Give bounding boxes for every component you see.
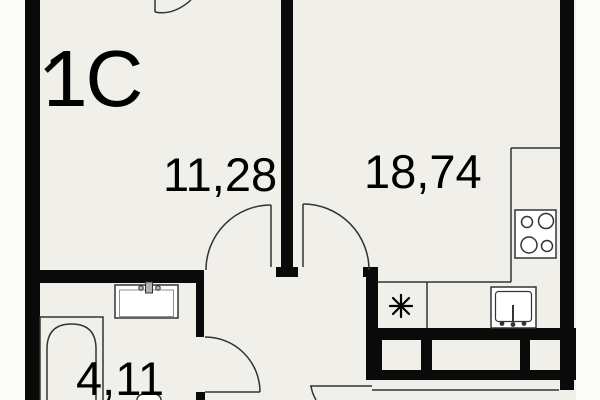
window-opening-3 (530, 340, 560, 370)
balcony-window-openings (382, 340, 560, 370)
area-label-bathroom: 4,11 (76, 352, 164, 400)
unit-label: 1C (43, 34, 141, 123)
bathroom-top-wall (25, 270, 204, 283)
center-wall-end-pad (276, 267, 298, 277)
area-label-living-kitchen: 18,74 (364, 145, 482, 198)
bathroom-right-wall (196, 283, 204, 337)
left-wall (25, 0, 40, 400)
window-opening-1 (382, 340, 421, 370)
washbasin-faucet (146, 282, 153, 293)
window-opening-2 (432, 340, 520, 370)
sink-faucet-base (511, 322, 516, 327)
floor-plan-svg: 1C 18,74 11,28 4,11 (0, 0, 600, 400)
area-label-room: 11,28 (163, 148, 277, 201)
center-partition-wall (281, 0, 293, 267)
faucet-knob-left (139, 286, 144, 291)
washing-machine-symbol (390, 295, 412, 317)
kitchen-door-jamb (363, 267, 378, 277)
faucet-knob-right (156, 286, 161, 291)
sink-knob-right (522, 321, 527, 326)
sink-knob-left (500, 321, 505, 326)
floor-plan: 1C 18,74 11,28 4,11 (0, 0, 600, 400)
bathroom-door-lower-jamb (196, 392, 205, 400)
